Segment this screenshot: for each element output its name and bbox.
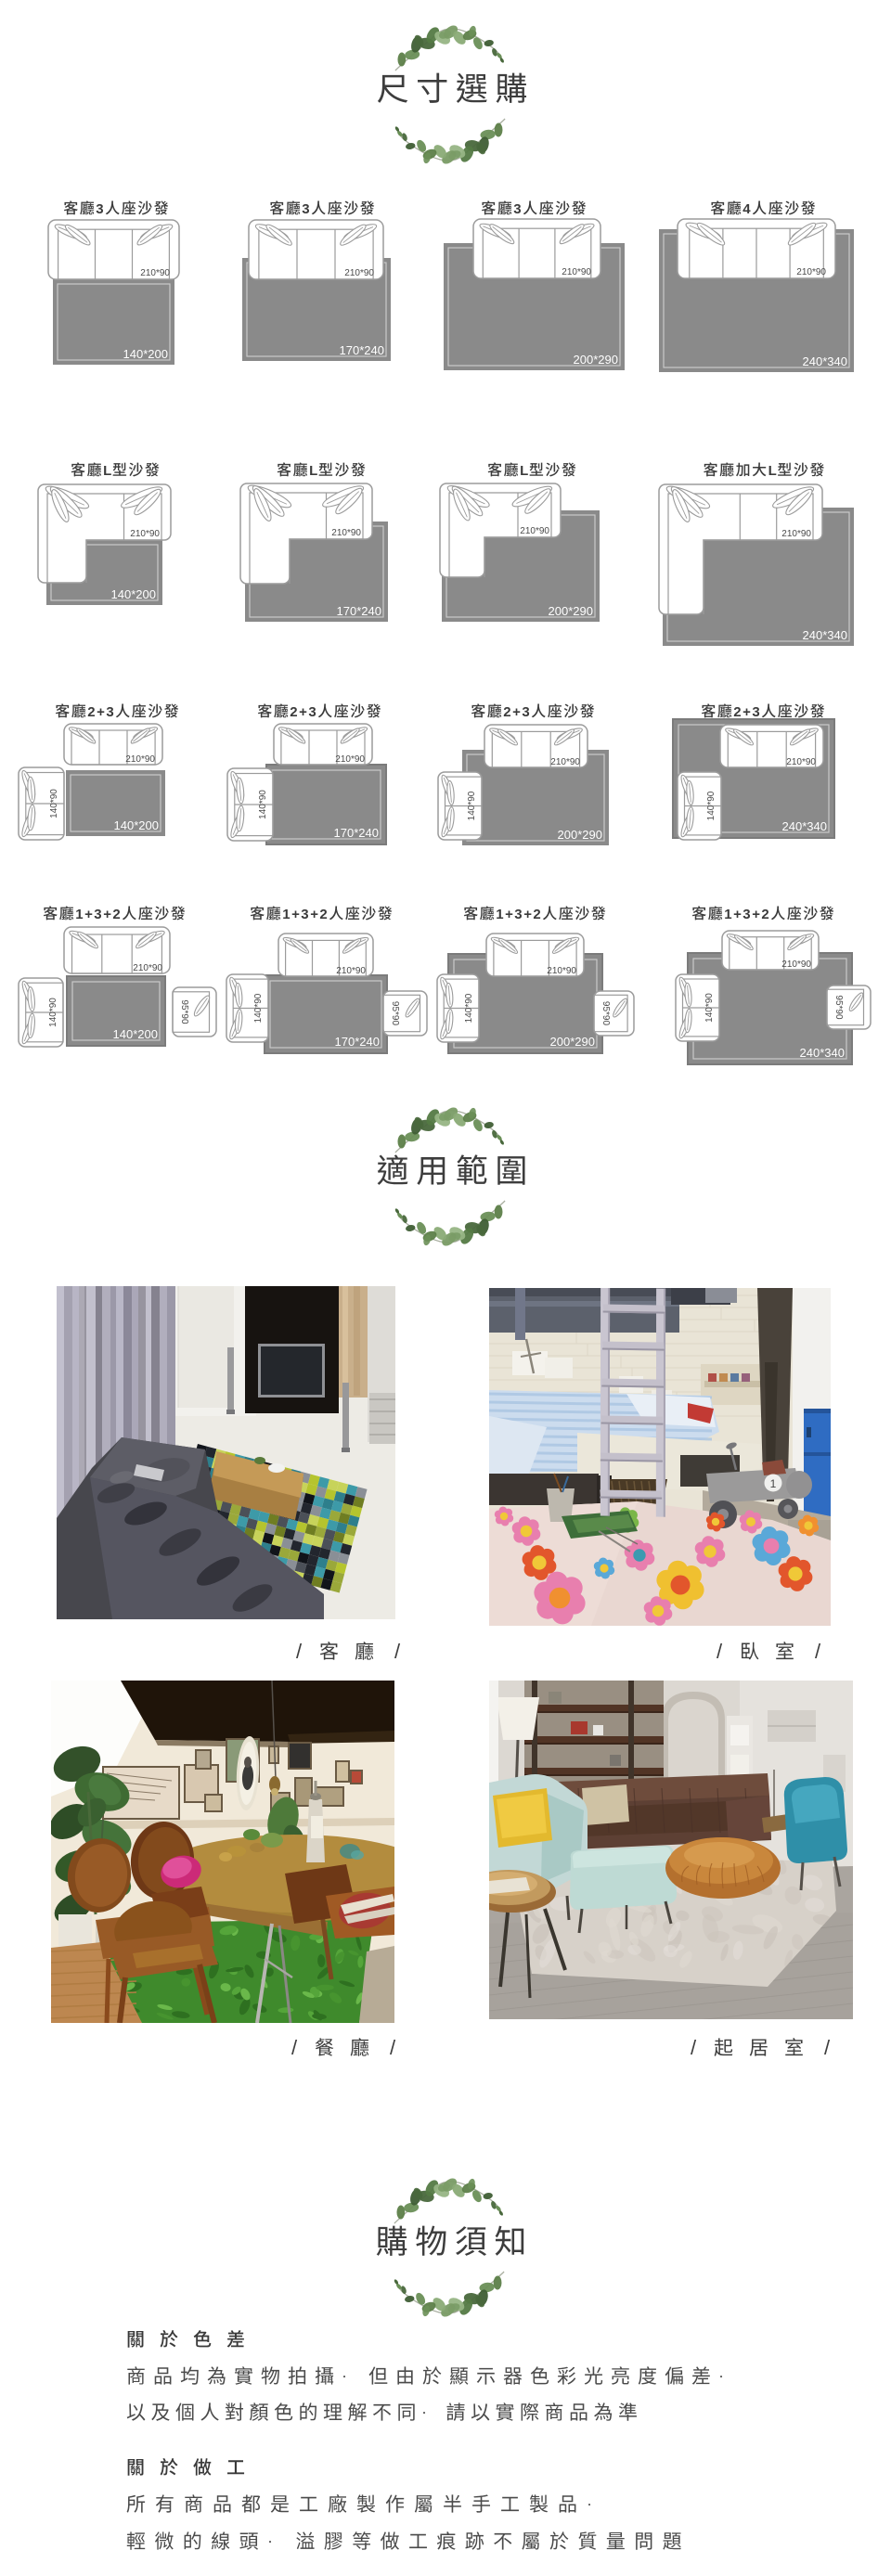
svg-text:140*90: 140*90 xyxy=(258,790,268,819)
svg-text:L: L xyxy=(768,463,777,479)
svg-text:1+3+2: 1+3+2 xyxy=(496,907,541,922)
svg-text:140*90: 140*90 xyxy=(467,791,477,820)
svg-text:210*90: 210*90 xyxy=(125,754,155,765)
svg-text:140*200: 140*200 xyxy=(123,347,168,361)
svg-text:210*90: 210*90 xyxy=(786,757,816,767)
svg-text:/: / xyxy=(815,1640,821,1663)
svg-text:95*90: 95*90 xyxy=(833,995,844,1020)
svg-text:240*340: 240*340 xyxy=(803,628,847,642)
svg-text:200*290: 200*290 xyxy=(558,828,602,842)
svg-text:140*90: 140*90 xyxy=(704,993,715,1023)
svg-text:210*90: 210*90 xyxy=(133,963,162,973)
svg-text:210*90: 210*90 xyxy=(550,757,580,767)
svg-text:140*90: 140*90 xyxy=(48,998,58,1027)
svg-text:L: L xyxy=(103,463,111,479)
svg-text:1: 1 xyxy=(770,1477,777,1490)
svg-text:2+3: 2+3 xyxy=(290,704,316,720)
svg-text:1+3+2: 1+3+2 xyxy=(75,907,121,922)
svg-text:140*90: 140*90 xyxy=(706,791,717,820)
svg-text:240*340: 240*340 xyxy=(782,819,827,833)
svg-text:210*90: 210*90 xyxy=(336,966,366,976)
svg-text:2+3: 2+3 xyxy=(503,704,529,720)
svg-text:1+3+2: 1+3+2 xyxy=(724,907,769,922)
svg-text:200*290: 200*290 xyxy=(549,604,593,618)
svg-text:95*90: 95*90 xyxy=(600,1001,611,1026)
svg-text:140*90: 140*90 xyxy=(253,993,264,1023)
svg-text:170*240: 170*240 xyxy=(335,1035,380,1049)
svg-text:210*90: 210*90 xyxy=(547,966,576,976)
svg-text:210*90: 210*90 xyxy=(781,529,811,539)
svg-text:L: L xyxy=(309,463,317,479)
svg-text:140*90: 140*90 xyxy=(49,789,59,818)
svg-text:210*90: 210*90 xyxy=(331,528,361,538)
svg-text:3: 3 xyxy=(302,201,309,217)
svg-text:210*90: 210*90 xyxy=(335,754,365,765)
svg-text:200*290: 200*290 xyxy=(574,353,618,367)
svg-text:170*240: 170*240 xyxy=(337,604,381,618)
svg-text:240*340: 240*340 xyxy=(800,1046,845,1060)
svg-text:/: / xyxy=(394,1640,401,1663)
svg-text:140*200: 140*200 xyxy=(113,1027,158,1041)
svg-text:/: / xyxy=(717,1640,723,1663)
svg-text:210*90: 210*90 xyxy=(140,268,170,278)
svg-text:95*90: 95*90 xyxy=(179,999,189,1024)
svg-text:/: / xyxy=(296,1640,303,1663)
svg-text:210*90: 210*90 xyxy=(344,268,374,278)
svg-text:2+3: 2+3 xyxy=(87,704,113,720)
svg-text:95*90: 95*90 xyxy=(390,1001,400,1026)
svg-text:/: / xyxy=(291,2036,298,2059)
svg-text:170*240: 170*240 xyxy=(340,343,384,357)
svg-text:210*90: 210*90 xyxy=(781,960,811,970)
svg-text:210*90: 210*90 xyxy=(562,267,591,277)
svg-text:170*240: 170*240 xyxy=(334,826,379,840)
svg-text:/: / xyxy=(390,2036,396,2059)
svg-text:2+3: 2+3 xyxy=(733,704,759,720)
svg-text:4: 4 xyxy=(742,201,751,217)
svg-text:3: 3 xyxy=(513,201,521,217)
svg-text:210*90: 210*90 xyxy=(796,267,826,277)
svg-text:3: 3 xyxy=(96,201,103,217)
svg-text:200*290: 200*290 xyxy=(550,1035,595,1049)
svg-text:/: / xyxy=(691,2036,697,2059)
svg-text:1+3+2: 1+3+2 xyxy=(282,907,328,922)
svg-text:210*90: 210*90 xyxy=(130,529,160,539)
svg-text:/: / xyxy=(824,2036,831,2059)
svg-text:240*340: 240*340 xyxy=(803,354,847,368)
svg-text:210*90: 210*90 xyxy=(520,526,549,536)
svg-text:140*200: 140*200 xyxy=(111,587,156,601)
svg-text:140*200: 140*200 xyxy=(114,818,159,832)
svg-text:140*90: 140*90 xyxy=(464,993,474,1023)
svg-text:L: L xyxy=(520,463,528,479)
